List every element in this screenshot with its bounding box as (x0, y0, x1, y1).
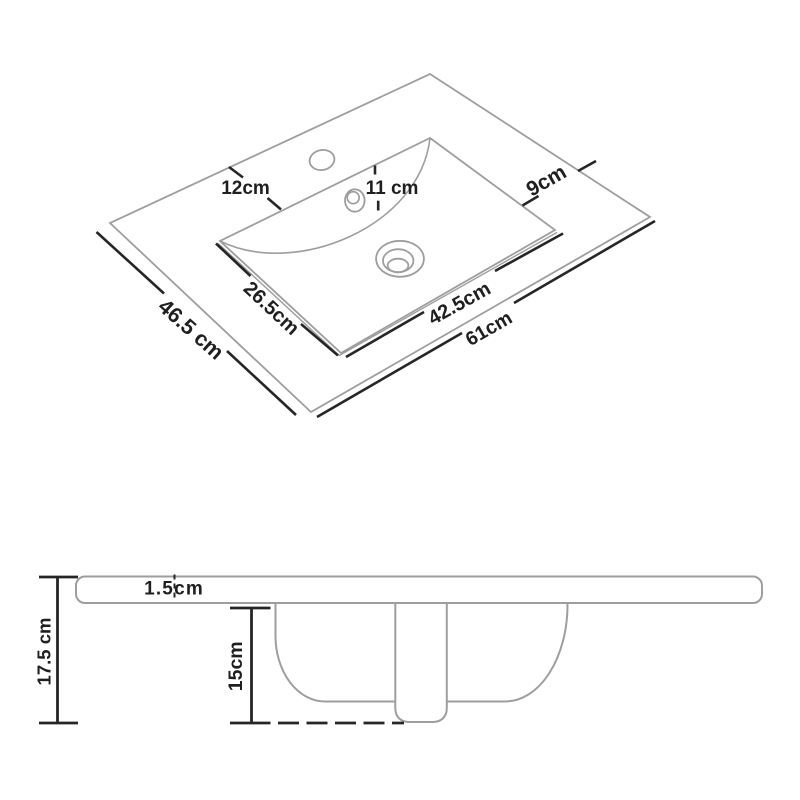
svg-text:17.5 cm: 17.5 cm (34, 618, 55, 686)
svg-text:11 cm: 11 cm (366, 178, 419, 199)
svg-text:12cm: 12cm (221, 178, 270, 199)
svg-text:1.5cm: 1.5cm (144, 579, 204, 600)
svg-text:15cm: 15cm (225, 641, 247, 691)
